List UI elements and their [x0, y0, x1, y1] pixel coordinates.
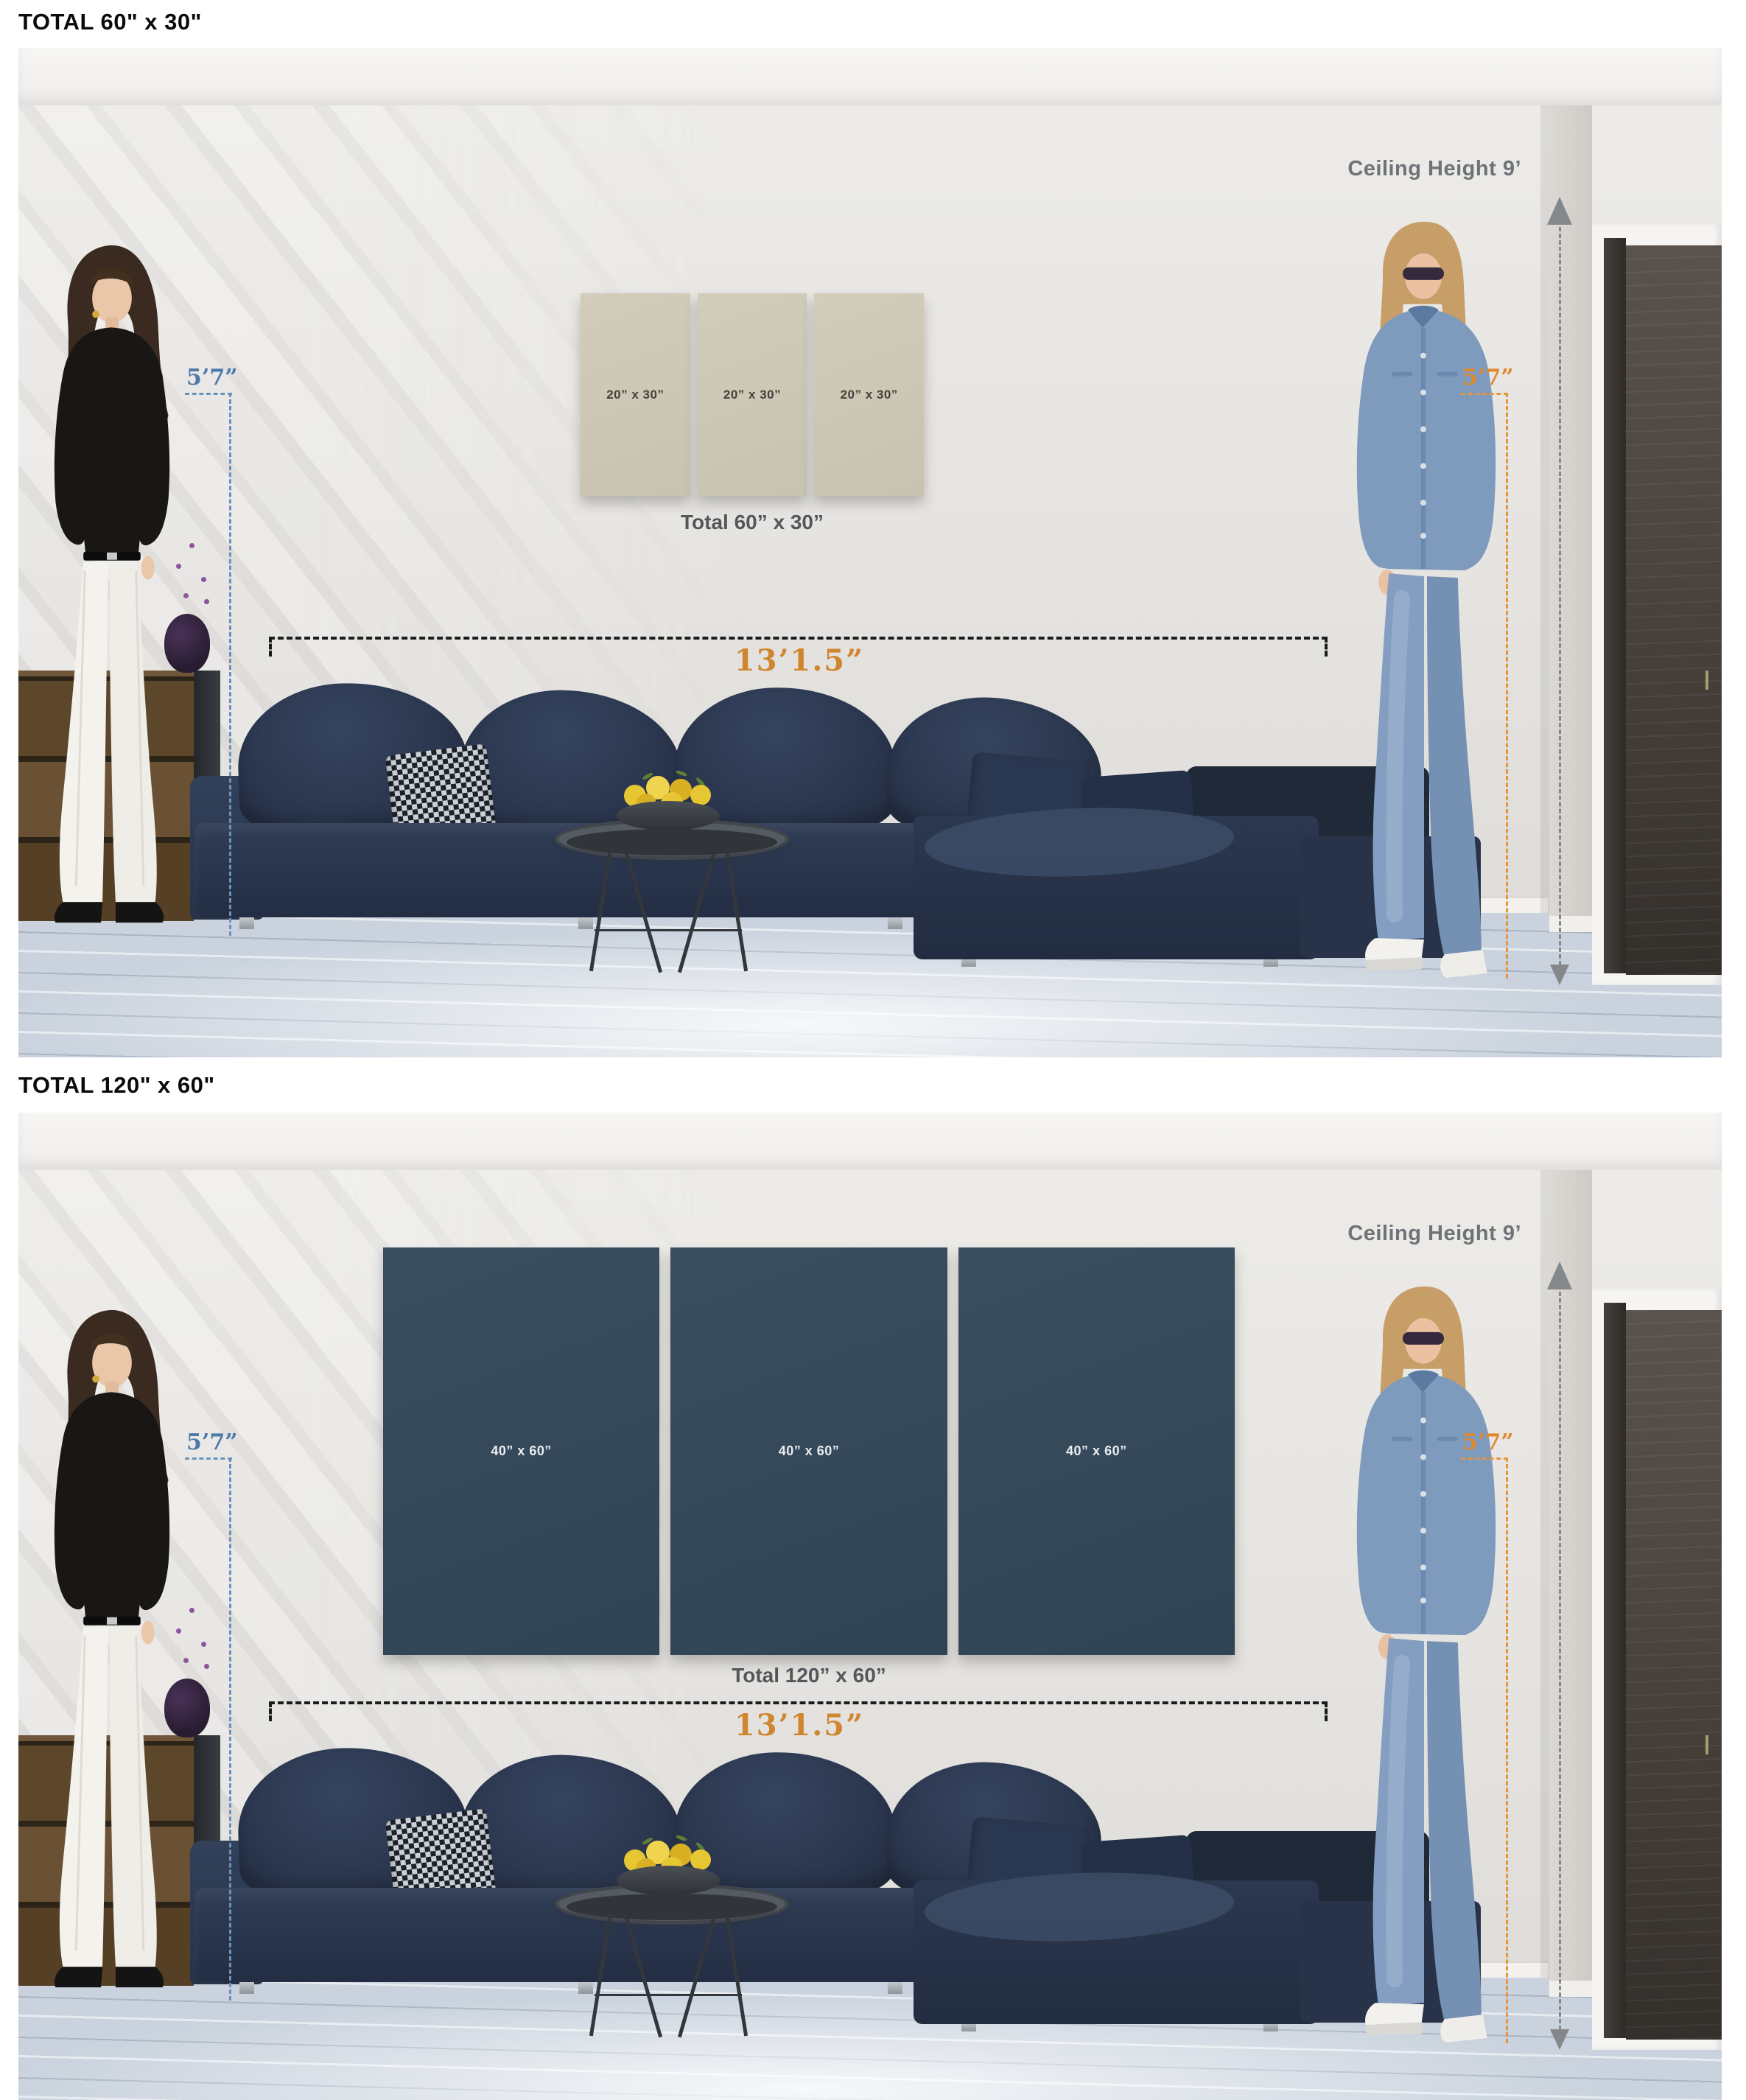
section-heading-120x60: TOTAL 120" x 60"	[18, 1072, 215, 1099]
coffee-table-surface	[567, 1894, 777, 1920]
vase-branch	[204, 1664, 209, 1669]
vase-branch	[201, 1642, 206, 1647]
sofa-width-left-tick	[269, 1701, 272, 1721]
art-triptych: 40” x 60” 40” x 60” 40” x 60”	[383, 1247, 1235, 1655]
art-panel-size-label: 40” x 60”	[491, 1443, 552, 1459]
ceiling-height-label: Ceiling Height 9’	[1271, 157, 1521, 181]
fruit-bowl	[617, 1866, 720, 1895]
sofa-leg	[578, 1982, 593, 1994]
woman-left-illustration	[33, 241, 188, 937]
left-height-dash-horizontal	[185, 1457, 232, 1460]
left-height-dash-vertical	[229, 1457, 231, 2001]
art-panel: 20” x 30”	[814, 293, 924, 496]
arrow-up-icon	[1547, 197, 1572, 225]
wall-corner	[1540, 1170, 1549, 1978]
woman-left-illustration	[33, 1306, 188, 2002]
sofa-width-dash-line	[269, 637, 1328, 640]
art-panel: 40” x 60”	[958, 1247, 1235, 1655]
right-height-dash-horizontal	[1461, 1457, 1508, 1460]
arrow-up-icon	[1547, 1261, 1572, 1289]
sofa-width-label: 13’1.5”	[564, 1708, 1035, 1743]
door	[1626, 245, 1722, 975]
left-height-dash-vertical	[229, 393, 231, 936]
room-scene-small-art: 20” x 30” 20” x 30” 20” x 30” Total 60” …	[18, 48, 1722, 1057]
sofa-width-label: 13’1.5”	[564, 643, 1035, 678]
right-person-height-label: 5’7”	[1462, 1429, 1513, 1455]
art-panel-size-label: 20” x 30”	[723, 388, 781, 402]
hallway-baseboard	[1549, 1981, 1592, 1997]
ceiling	[18, 1113, 1722, 1170]
ceiling-height-label: Ceiling Height 9’	[1271, 1222, 1521, 1246]
size-guide-page: TOTAL 60" x 30"	[0, 0, 1746, 2100]
sofa-width-left-tick	[269, 637, 272, 657]
ceiling	[18, 48, 1722, 105]
sofa-width-right-tick	[1325, 637, 1328, 657]
left-height-dash-horizontal	[185, 393, 232, 395]
vase-branch	[204, 599, 209, 604]
sofa-width-right-tick	[1325, 1701, 1328, 1721]
woman-right-illustration	[1314, 216, 1512, 988]
art-total-caption: Total 120” x 60”	[383, 1664, 1235, 1687]
right-person-height-label: 5’7”	[1462, 365, 1513, 391]
art-panel: 20” x 30”	[581, 293, 690, 496]
art-panel: 40” x 60”	[383, 1247, 659, 1655]
art-total-caption: Total 60” x 30”	[581, 511, 924, 534]
woman-right-illustration	[1314, 1281, 1512, 2053]
art-panel-size-label: 20” x 30”	[606, 388, 664, 402]
right-height-dash-vertical	[1506, 1457, 1508, 2043]
door-jamb	[1604, 238, 1626, 973]
art-panel: 20” x 30”	[698, 293, 807, 496]
sofa-leg	[888, 1982, 902, 1994]
section-heading-60x30: TOTAL 60" x 30"	[18, 9, 202, 35]
vase-branch	[189, 543, 194, 548]
art-panel-size-label: 20” x 30”	[841, 388, 898, 402]
sofa-leg	[578, 917, 593, 929]
ceiling-height-dash-vertical	[1559, 1292, 1561, 2030]
table-brace	[595, 929, 742, 931]
right-height-dash-horizontal	[1461, 393, 1508, 395]
left-person-height-label: 5’7”	[186, 1429, 237, 1455]
hallway-baseboard	[1549, 916, 1592, 932]
right-height-dash-vertical	[1506, 393, 1508, 979]
art-triptych: 20” x 30” 20” x 30” 20” x 30”	[581, 293, 924, 496]
coffee-table-surface	[567, 829, 777, 855]
wall-corner	[1540, 105, 1549, 913]
sofa-leg	[888, 917, 902, 929]
door-handle	[1705, 671, 1708, 690]
room-scene-large-art: 40” x 60” 40” x 60” 40” x 60” Total 120”…	[18, 1113, 1722, 2100]
arrow-down-icon	[1550, 2029, 1569, 2050]
sofa-leg	[239, 917, 254, 929]
table-brace	[595, 1994, 742, 1996]
ceiling-height-dash-vertical	[1559, 227, 1561, 965]
arrow-down-icon	[1550, 965, 1569, 985]
hallway-wall	[1549, 105, 1592, 932]
art-panel-size-label: 40” x 60”	[1066, 1443, 1127, 1459]
sofa-leg	[239, 1982, 254, 1994]
hallway-wall	[1549, 1170, 1592, 1997]
left-person-height-label: 5’7”	[186, 365, 237, 391]
fruit-bowl	[617, 801, 720, 830]
door	[1626, 1310, 1722, 2040]
art-panel-size-label: 40” x 60”	[779, 1443, 840, 1459]
art-panel: 40” x 60”	[670, 1247, 947, 1655]
sofa-width-dash-line	[269, 1701, 1328, 1704]
vase-branch	[201, 577, 206, 582]
vase-branch	[189, 1608, 194, 1613]
door-handle	[1705, 1735, 1708, 1754]
door-jamb	[1604, 1303, 1626, 2038]
